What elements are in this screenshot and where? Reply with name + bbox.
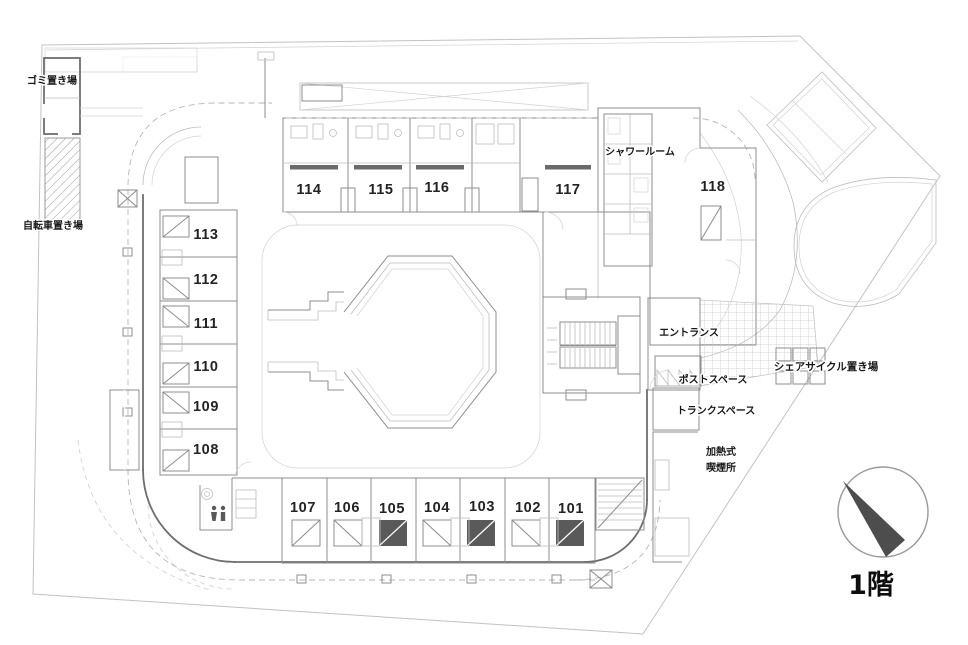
room-row-top [283, 118, 598, 298]
room-116-number: 116 [424, 180, 449, 196]
stair-bottom-right [596, 478, 644, 530]
garbage-room [42, 58, 143, 136]
room-107-number: 107 [290, 500, 316, 516]
room-114-number: 114 [296, 182, 321, 198]
room-106-number: 106 [334, 500, 360, 516]
floor-plan-page: 101 102 103 104 105 106 107 108 109 110 … [0, 0, 968, 645]
room-109-number: 109 [193, 399, 219, 415]
compass [838, 467, 928, 557]
room-101-number: 101 [558, 501, 584, 517]
area-labels: ゴミ置き場 自転車置き場 シャワールーム エントランス ポストスペース シェアサ… [23, 74, 879, 474]
smoking-area-label-line2: 喫煙所 [706, 461, 736, 474]
shower-room-label: シャワールーム [605, 146, 675, 158]
room-108-number: 108 [193, 442, 219, 458]
room-104-number: 104 [424, 500, 450, 516]
toilet-area [200, 478, 282, 530]
smoking-area [653, 432, 698, 562]
room-111-number: 111 [194, 316, 218, 332]
floor-plan-canvas: 101 102 103 104 105 106 107 108 109 110 … [0, 0, 968, 645]
room-102-number: 102 [515, 500, 541, 516]
room-115-number: 115 [368, 182, 393, 198]
stair-top-left [185, 157, 218, 203]
room-column-left [160, 210, 237, 475]
shaft-box-left [118, 190, 137, 207]
shower-room-block [604, 114, 652, 266]
room-row-bottom [200, 478, 595, 563]
shaft-box-bottom [590, 570, 612, 588]
room-113-number: 113 [193, 227, 218, 243]
bath-fixtures [291, 124, 514, 144]
room-118-interior [701, 206, 756, 274]
smoking-area-label-line1: 加熱式 [705, 445, 736, 458]
room-117-number: 117 [555, 182, 580, 198]
room-numbers: 101 102 103 104 105 106 107 108 109 110 … [193, 179, 726, 517]
room-112-number: 112 [193, 272, 218, 288]
courtyard [262, 225, 540, 468]
room-110-number: 110 [193, 359, 218, 375]
floor-label: 1階 [848, 570, 894, 601]
bicycle-parking-area [45, 138, 80, 222]
share-cycle-parking-label: シェアサイクル置き場 [774, 360, 879, 373]
canopy [45, 48, 197, 72]
bicycle-parking-label: 自転車置き場 [23, 219, 83, 232]
garbage-area-label: ゴミ置き場 [27, 74, 77, 87]
restroom-icon [211, 506, 225, 521]
entrance-label: エントランス [659, 327, 719, 339]
trunk-space-label: トランクスペース [677, 405, 756, 417]
main-stair [543, 297, 640, 393]
room-105-number: 105 [379, 501, 405, 517]
post-space-label: ポストスペース [679, 373, 748, 386]
room-103-number: 103 [469, 499, 495, 515]
room-118-number: 118 [700, 179, 725, 195]
top-bridge-strip [258, 52, 588, 118]
